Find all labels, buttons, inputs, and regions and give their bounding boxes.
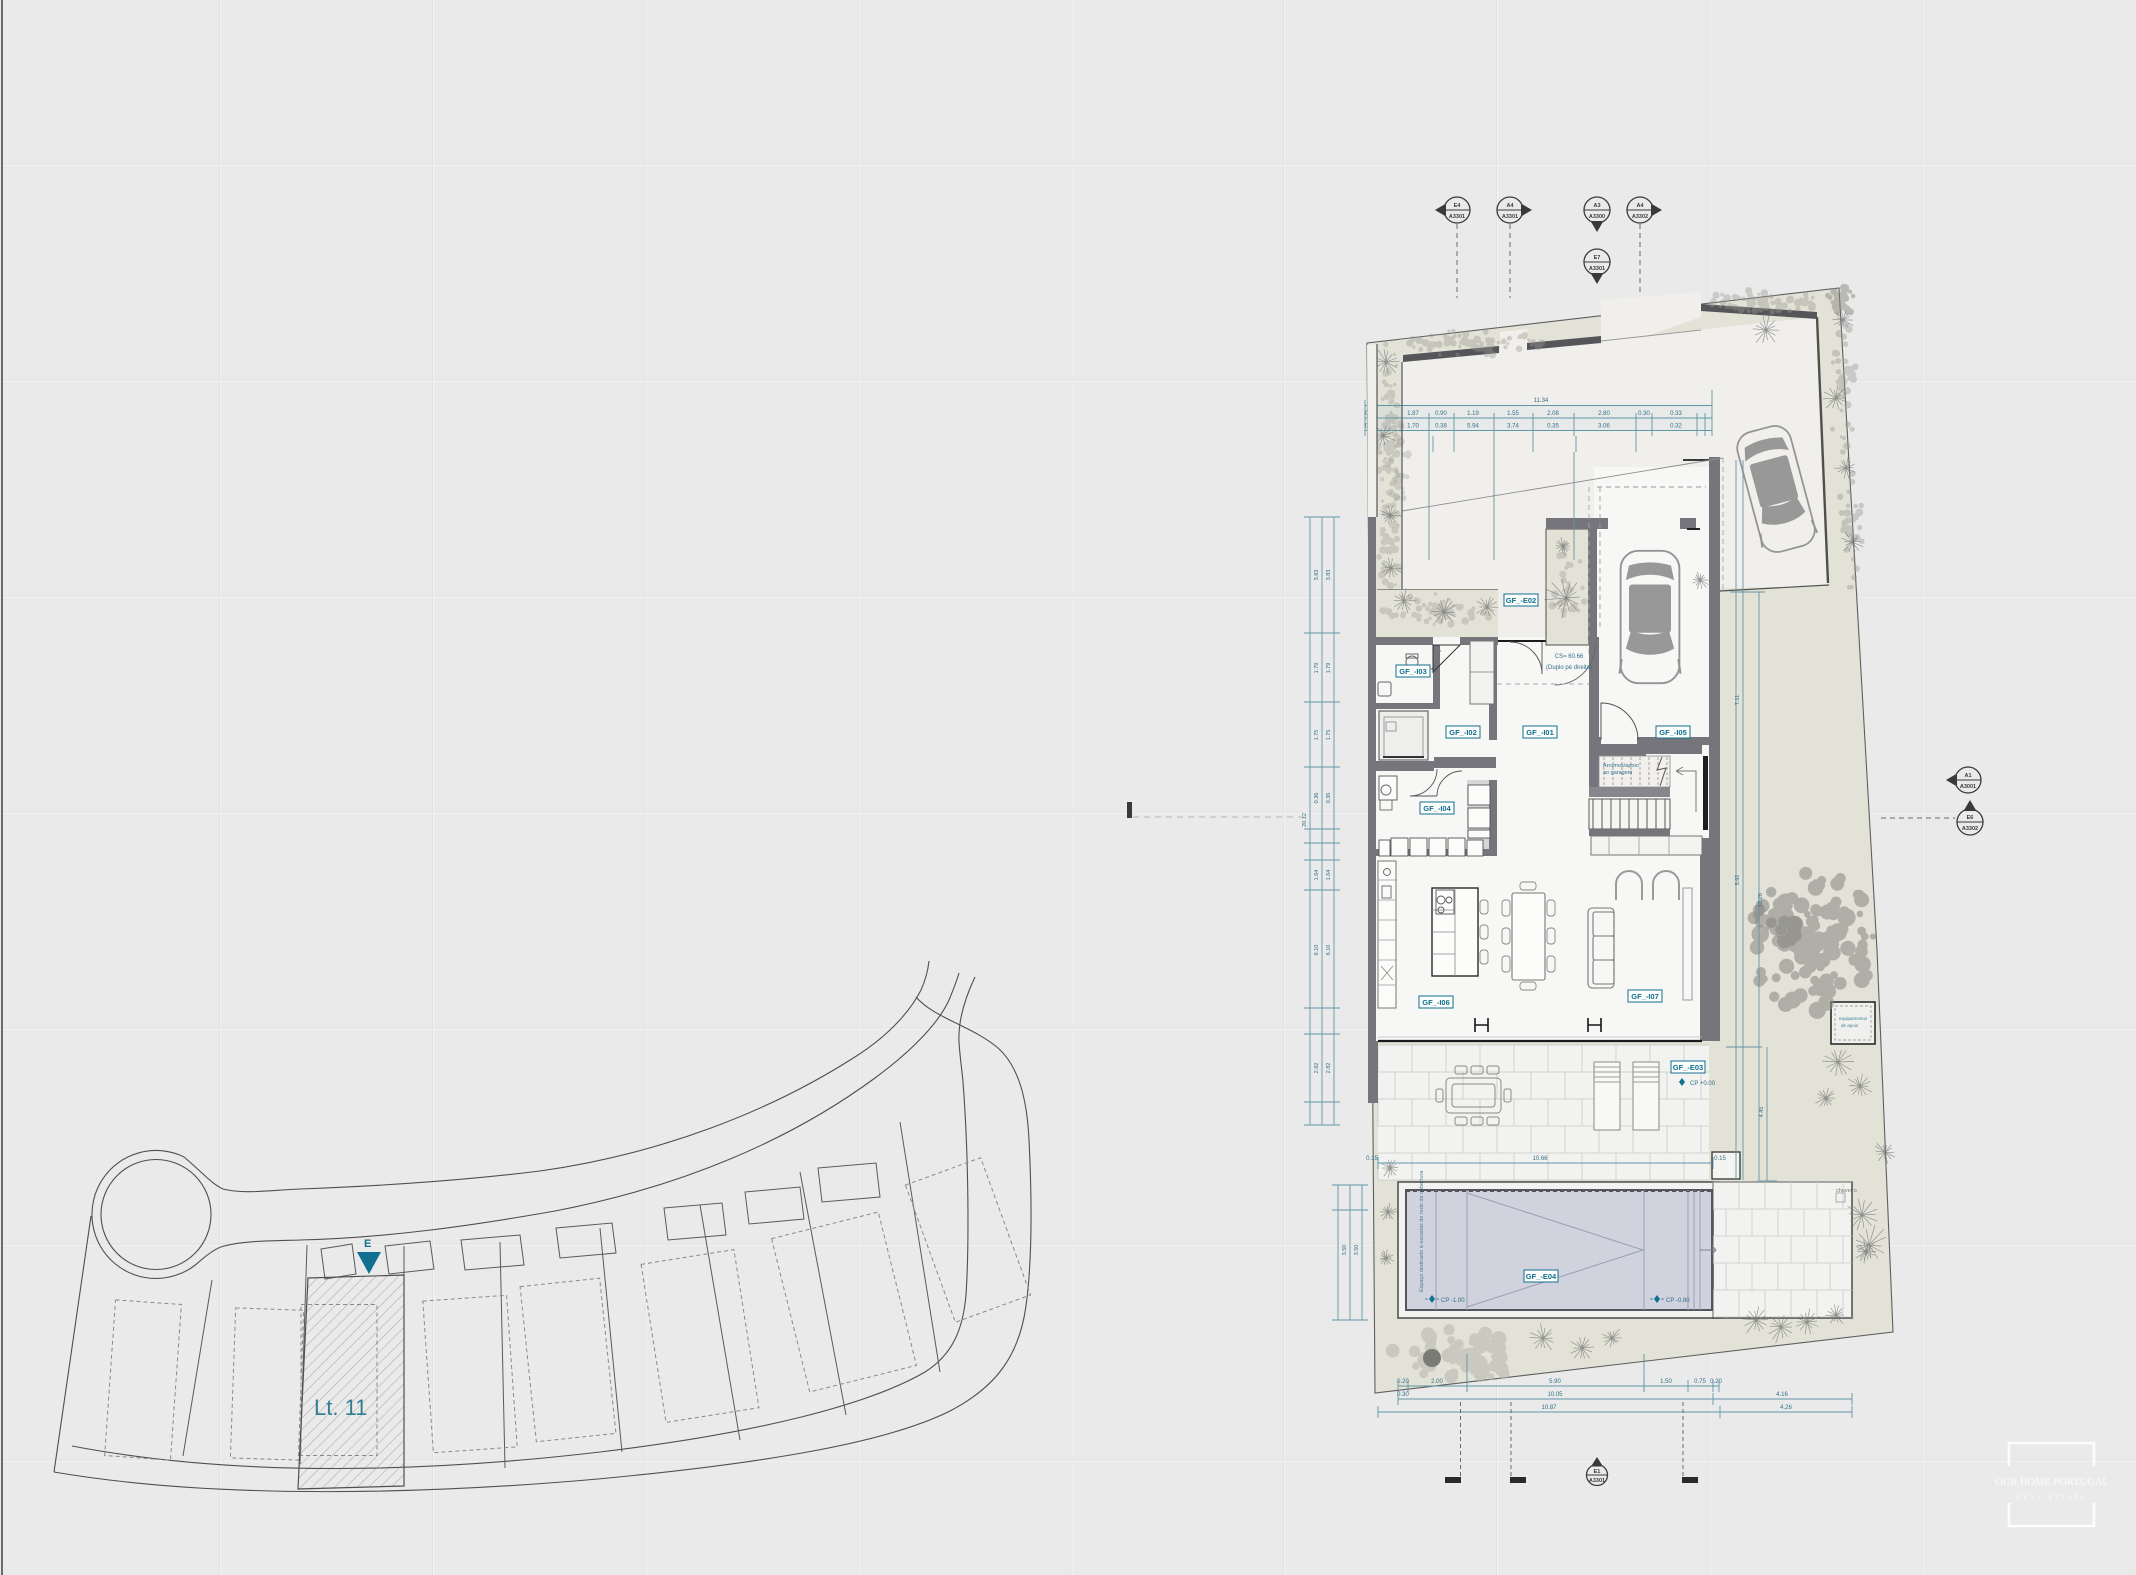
svg-text:3.50: 3.50 [1354, 1245, 1360, 1256]
svg-text:GF_-E04: GF_-E04 [1526, 1272, 1557, 1281]
svg-text:CP -1.00: CP -1.00 [1441, 1298, 1465, 1304]
svg-text:CP +0.00: CP +0.00 [1690, 1081, 1716, 1087]
svg-text:GF_-I03: GF_-I03 [1399, 667, 1427, 676]
svg-text:A3302: A3302 [1632, 214, 1648, 220]
svg-text:1.70: 1.70 [1407, 424, 1419, 430]
svg-text:7.11: 7.11 [1735, 695, 1741, 705]
svg-text:A3300: A3300 [1589, 214, 1605, 220]
svg-text:10.87: 10.87 [1541, 1405, 1557, 1411]
svg-text:GF_-I04: GF_-I04 [1423, 804, 1451, 813]
svg-text:GF_-E03: GF_-E03 [1673, 1063, 1703, 1072]
svg-text:6.10: 6.10 [1326, 945, 1332, 956]
svg-text:A3301: A3301 [1502, 214, 1518, 220]
svg-text:A3301: A3301 [1449, 214, 1465, 220]
svg-text:Espaço dedicado à escadas de r: Espaço dedicado à escadas de rede de cob… [1419, 1170, 1425, 1292]
svg-text:3.83: 3.83 [1314, 570, 1320, 581]
svg-text:0.15: 0.15 [1714, 1156, 1726, 1162]
svg-text:0.90: 0.90 [1435, 411, 1447, 417]
svg-text:2.82: 2.82 [1326, 1063, 1332, 1074]
svg-text:4.26: 4.26 [1780, 1405, 1792, 1411]
svg-text:2.80: 2.80 [1598, 411, 1610, 417]
svg-text:A4: A4 [1636, 203, 1644, 209]
svg-text:0.30: 0.30 [1638, 411, 1650, 417]
svg-text:A3: A3 [1593, 203, 1600, 209]
svg-text:E7: E7 [1594, 255, 1601, 261]
svg-text:0.35: 0.35 [1547, 424, 1559, 430]
svg-text:1.64: 1.64 [1326, 870, 1332, 881]
svg-text:1.64: 1.64 [1314, 870, 1320, 881]
svg-text:CS= 60.66: CS= 60.66 [1555, 654, 1584, 660]
svg-text:11.34: 11.34 [1534, 398, 1549, 404]
svg-text:GF_-I07: GF_-I07 [1631, 992, 1659, 1001]
svg-text:Arrumos/apoio: Arrumos/apoio [1603, 763, 1639, 769]
svg-text:3.74: 3.74 [1507, 424, 1519, 430]
svg-text:A1: A1 [1964, 773, 1971, 779]
svg-text:E4: E4 [1454, 203, 1462, 209]
svg-text:A3302: A3302 [1962, 826, 1978, 832]
svg-text:GF_-I06: GF_-I06 [1422, 998, 1450, 1007]
svg-text:0.20: 0.20 [1710, 1379, 1722, 1385]
svg-text:A4: A4 [1506, 203, 1514, 209]
svg-text:E6: E6 [1967, 815, 1974, 821]
svg-text:2.82: 2.82 [1314, 1063, 1320, 1074]
svg-text:de apoio: de apoio [1841, 1023, 1859, 1028]
svg-text:1.75: 1.75 [1314, 730, 1320, 741]
svg-text:1.55: 1.55 [1507, 411, 1519, 417]
svg-text:0.32: 0.32 [1670, 424, 1682, 430]
svg-text:0.15: 0.15 [1366, 1156, 1378, 1162]
svg-text:20.12: 20.12 [1302, 813, 1308, 827]
svg-text:OUR HOME PORTUGAL: OUR HOME PORTUGAL [1995, 1477, 2109, 1488]
svg-text:(Duplo pé direito): (Duplo pé direito) [1546, 665, 1592, 671]
svg-text:0.36: 0.36 [1314, 793, 1320, 804]
svg-text:5.92: 5.92 [1735, 875, 1741, 886]
svg-text:4.16: 4.16 [1776, 1392, 1788, 1398]
svg-text:10.05: 10.05 [1547, 1392, 1563, 1398]
svg-text:0.33: 0.33 [1670, 411, 1682, 417]
svg-text:A3301: A3301 [1589, 1478, 1605, 1484]
svg-text:1.75: 1.75 [1326, 730, 1332, 741]
svg-text:Lt. 11: Lt. 11 [314, 1395, 367, 1420]
svg-text:0.38: 0.38 [1435, 424, 1447, 430]
svg-text:0.20: 0.20 [1397, 1379, 1409, 1385]
svg-text:E: E [364, 1238, 371, 1250]
svg-text:GF_-E02: GF_-E02 [1506, 596, 1536, 605]
svg-text:5.94: 5.94 [1467, 424, 1479, 430]
svg-text:4.45: 4.45 [1759, 1107, 1765, 1118]
svg-text:3.06: 3.06 [1598, 424, 1610, 430]
svg-text:1.50: 1.50 [1660, 1379, 1672, 1385]
svg-text:0.75: 0.75 [1694, 1379, 1706, 1385]
svg-text:A3001: A3001 [1960, 784, 1976, 790]
svg-text:1.79: 1.79 [1314, 663, 1320, 674]
svg-text:1.79: 1.79 [1326, 663, 1332, 674]
svg-text:ao garagem: ao garagem [1603, 770, 1633, 776]
svg-text:2.00: 2.00 [1431, 1379, 1443, 1385]
svg-text:E1: E1 [1594, 1469, 1601, 1475]
svg-text:0.30: 0.30 [1397, 1392, 1409, 1398]
svg-text:A3301: A3301 [1589, 266, 1605, 272]
svg-text:GF_-I01: GF_-I01 [1526, 728, 1554, 737]
svg-text:GF_-I02: GF_-I02 [1449, 728, 1477, 737]
svg-text:REAL ESTATE: REAL ESTATE [2016, 1495, 2087, 1501]
svg-text:10.26: 10.26 [1758, 893, 1764, 907]
svg-text:3.83: 3.83 [1326, 570, 1332, 581]
svg-text:1.87: 1.87 [1407, 411, 1419, 417]
svg-text:3.50: 3.50 [1342, 1245, 1348, 1256]
svg-text:5.90: 5.90 [1549, 1379, 1561, 1385]
svg-text:GF_-I05: GF_-I05 [1659, 728, 1687, 737]
svg-text:1.19: 1.19 [1467, 411, 1479, 417]
svg-text:0.36: 0.36 [1326, 793, 1332, 804]
svg-text:6.10: 6.10 [1314, 945, 1320, 956]
svg-text:2.08: 2.08 [1547, 411, 1559, 417]
svg-text:CP -0.80: CP -0.80 [1666, 1298, 1690, 1304]
svg-text:equipamentos: equipamentos [1839, 1016, 1868, 1021]
svg-text:10.66: 10.66 [1532, 1156, 1548, 1162]
